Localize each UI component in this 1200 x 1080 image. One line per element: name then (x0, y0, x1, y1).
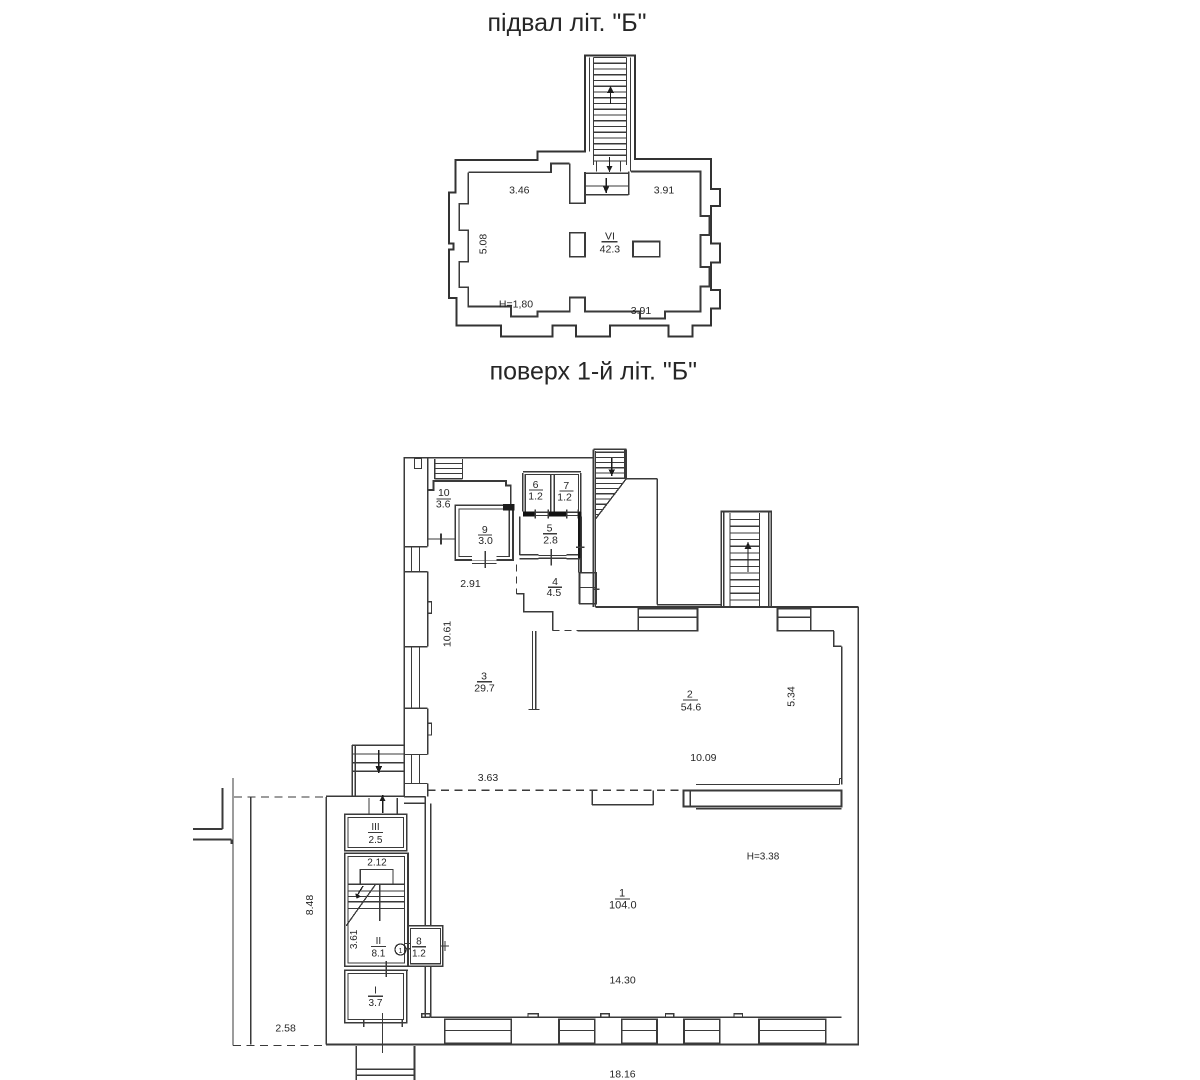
svg-text:3: 3 (481, 671, 487, 683)
svg-text:2.12: 2.12 (367, 857, 387, 868)
svg-text:1.2: 1.2 (557, 491, 572, 503)
svg-text:1: 1 (399, 948, 403, 955)
svg-text:5.34: 5.34 (786, 686, 798, 707)
svg-text:10: 10 (438, 487, 450, 499)
svg-text:3.61: 3.61 (349, 929, 360, 949)
svg-text:3.0: 3.0 (478, 535, 493, 547)
svg-text:5.08: 5.08 (477, 234, 489, 255)
svg-text:3.91: 3.91 (654, 185, 675, 197)
svg-text:H=1,80: H=1,80 (499, 299, 533, 311)
svg-text:1: 1 (619, 888, 625, 900)
svg-text:II: II (376, 936, 382, 947)
svg-text:42.3: 42.3 (600, 243, 621, 255)
svg-text:3.7: 3.7 (369, 998, 383, 1009)
svg-text:18.16: 18.16 (609, 1069, 635, 1080)
svg-text:8.48: 8.48 (304, 895, 316, 916)
svg-text:2.5: 2.5 (369, 835, 383, 846)
svg-text:4.5: 4.5 (547, 587, 562, 599)
svg-text:8.1: 8.1 (371, 948, 385, 959)
svg-text:3.6: 3.6 (436, 499, 451, 511)
svg-text:3.91: 3.91 (631, 305, 652, 317)
svg-text:104.0: 104.0 (609, 900, 637, 912)
svg-text:H=3.38: H=3.38 (747, 852, 780, 863)
svg-text:29.7: 29.7 (474, 683, 495, 695)
svg-text:10.61: 10.61 (442, 621, 454, 647)
svg-text:VI: VI (605, 230, 615, 242)
svg-text:1.2: 1.2 (528, 490, 543, 502)
svg-text:підвал літ. "Б": підвал літ. "Б" (488, 9, 647, 37)
svg-text:2.58: 2.58 (275, 1023, 296, 1035)
svg-text:7: 7 (563, 480, 569, 492)
svg-text:III: III (371, 822, 379, 833)
svg-text:3.46: 3.46 (509, 185, 530, 197)
svg-text:10.09: 10.09 (690, 752, 716, 764)
svg-text:54.6: 54.6 (681, 701, 702, 713)
svg-text:поверх 1-й літ. "Б": поверх 1-й літ. "Б" (490, 358, 697, 386)
svg-text:3.63: 3.63 (478, 772, 499, 784)
svg-text:6: 6 (533, 479, 539, 491)
svg-text:2.8: 2.8 (543, 534, 558, 546)
svg-text:1.2: 1.2 (412, 949, 426, 960)
svg-text:2.91: 2.91 (460, 578, 481, 590)
svg-text:I: I (374, 986, 377, 997)
svg-text:5: 5 (547, 523, 553, 535)
svg-text:8: 8 (416, 936, 422, 947)
svg-text:14.30: 14.30 (609, 975, 635, 987)
svg-text:2: 2 (687, 689, 693, 701)
